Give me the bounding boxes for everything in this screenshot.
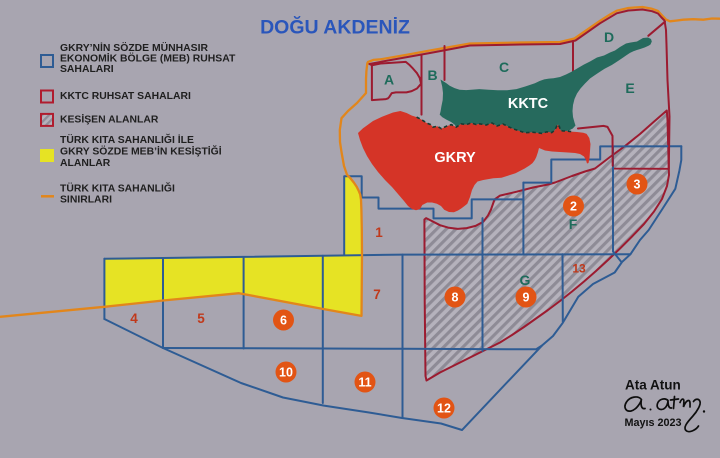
- svg-text:EKONOMİK BÖLGE (MEB) RUHSAT: EKONOMİK BÖLGE (MEB) RUHSAT: [60, 52, 236, 65]
- svg-text:7: 7: [373, 287, 381, 302]
- svg-text:GKRY: GKRY: [434, 150, 476, 166]
- svg-text:12: 12: [437, 402, 451, 416]
- svg-text:TÜRK KITA SAHANLIĞI: TÜRK KITA SAHANLIĞI: [60, 181, 175, 194]
- svg-text:Ata Atun: Ata Atun: [625, 378, 681, 393]
- svg-text:1: 1: [375, 225, 383, 240]
- svg-text:Mayıs 2023: Mayıs 2023: [625, 417, 682, 429]
- svg-text:DOĞU AKDENİZ: DOĞU AKDENİZ: [260, 16, 410, 39]
- svg-text:6: 6: [280, 314, 287, 328]
- svg-text:13: 13: [572, 262, 586, 276]
- svg-text:2: 2: [570, 200, 577, 214]
- svg-text:GKRY SÖZDE MEB’İN KESİŞTİĞİ: GKRY SÖZDE MEB’İN KESİŞTİĞİ: [60, 144, 222, 157]
- svg-text:B: B: [427, 67, 437, 83]
- svg-text:F: F: [569, 216, 578, 232]
- svg-text:11: 11: [358, 376, 371, 390]
- svg-text:5: 5: [197, 311, 205, 326]
- svg-text:10: 10: [279, 366, 293, 380]
- svg-text:GKRY’NİN SÖZDE MÜNHASIR: GKRY’NİN SÖZDE MÜNHASIR: [60, 41, 208, 54]
- svg-text:D: D: [604, 29, 614, 45]
- svg-text:C: C: [499, 59, 509, 75]
- svg-text:4: 4: [130, 311, 138, 326]
- svg-text:KKTC RUHSAT SAHALARI: KKTC RUHSAT SAHALARI: [60, 91, 191, 102]
- svg-text:KKTC: KKTC: [508, 96, 549, 112]
- svg-text:SAHALARI: SAHALARI: [60, 64, 114, 75]
- svg-text:ALANLAR: ALANLAR: [60, 158, 111, 169]
- svg-text:3: 3: [634, 178, 641, 192]
- svg-text:G: G: [520, 272, 531, 288]
- svg-text:E: E: [625, 80, 634, 96]
- svg-text:TÜRK KITA SAHANLIĞI İLE: TÜRK KITA SAHANLIĞI İLE: [60, 133, 194, 146]
- svg-text:KESİŞEN ALANLAR: KESİŞEN ALANLAR: [60, 112, 159, 125]
- svg-text:SINIRLARI: SINIRLARI: [60, 195, 112, 206]
- svg-text:9: 9: [523, 291, 530, 305]
- svg-text:8: 8: [452, 291, 459, 305]
- svg-text:A: A: [384, 72, 394, 88]
